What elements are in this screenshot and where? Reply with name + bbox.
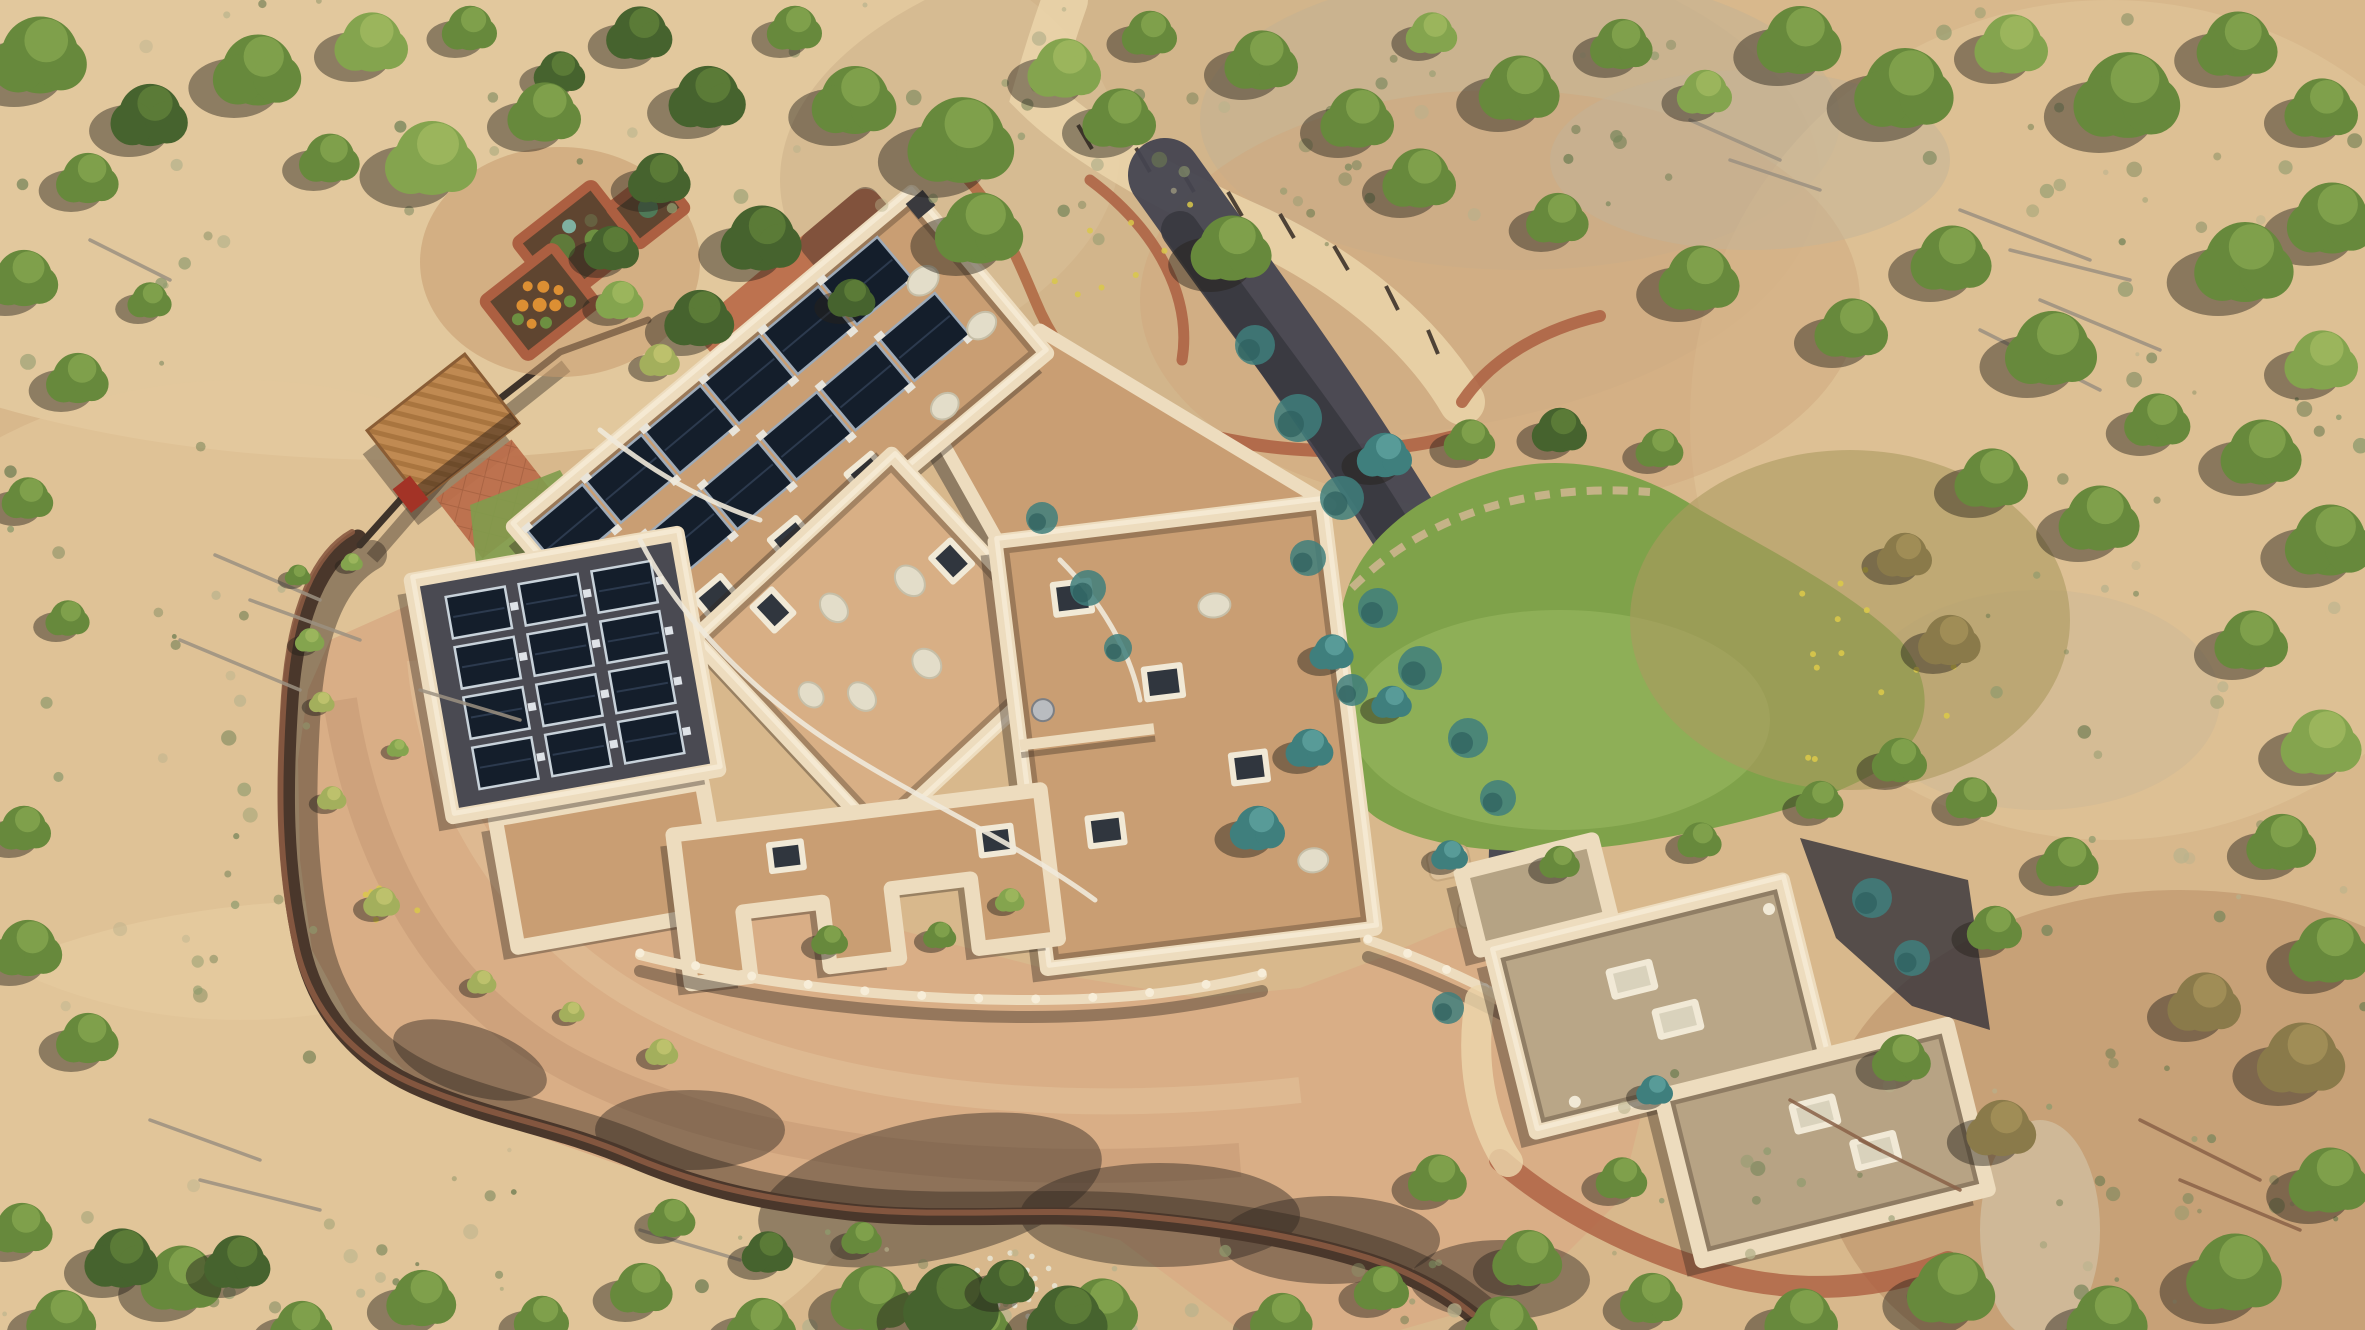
scene-canvas	[0, 0, 2365, 1330]
garage-wing	[395, 530, 723, 831]
aerial-photograph	[0, 0, 2365, 1330]
